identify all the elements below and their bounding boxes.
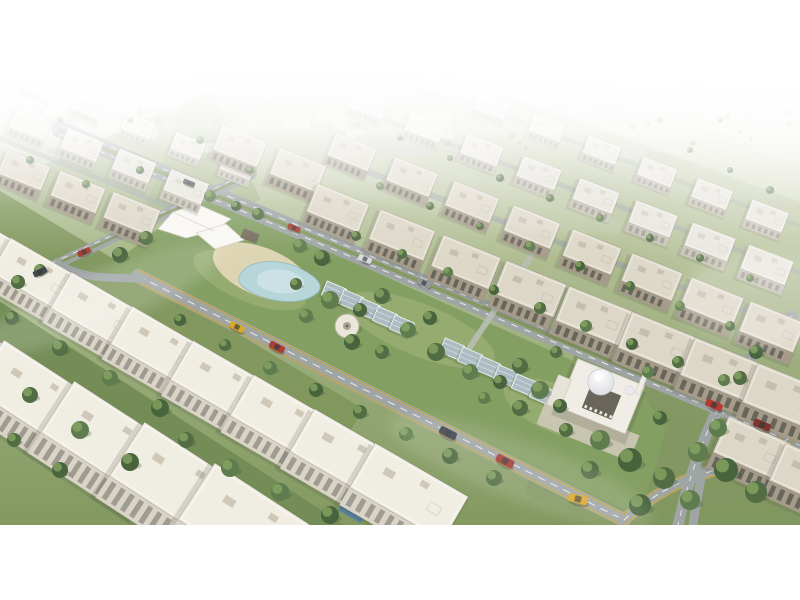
- building-roof: [366, 49, 399, 74]
- facade-window: [166, 523, 181, 542]
- roof-penthouse: [387, 64, 394, 70]
- facade-window: [370, 68, 373, 72]
- roof-parapet: [367, 51, 397, 73]
- facade-window: [208, 550, 224, 570]
- facade-window: [247, 575, 263, 595]
- aerial-render-figure: [0, 0, 800, 600]
- light-veil: [0, 72, 800, 525]
- roof-unit: [384, 58, 389, 62]
- facade-window: [175, 529, 190, 548]
- facade-window: [411, 531, 423, 546]
- facade-window: [237, 569, 253, 589]
- building-facade: [163, 520, 291, 600]
- facade-window: [227, 563, 243, 583]
- facade-window: [218, 557, 234, 577]
- roof-unit: [374, 56, 380, 61]
- screenshot-root: [0, 0, 800, 600]
- facade-window: [189, 538, 205, 558]
- facade-window: [421, 536, 433, 551]
- aerial-compound-render: [0, 0, 800, 600]
- facade-window: [256, 582, 272, 600]
- facade-window: [170, 525, 186, 545]
- facade-window: [266, 588, 282, 600]
- facade-window: [184, 535, 199, 554]
- facade-window: [199, 544, 215, 564]
- facade-window: [366, 66, 369, 70]
- facade-window: [179, 532, 195, 552]
- facade-window: [402, 525, 414, 540]
- facade-window: [193, 541, 208, 560]
- roof-penthouse: [275, 541, 291, 556]
- photo-band: [0, 0, 800, 600]
